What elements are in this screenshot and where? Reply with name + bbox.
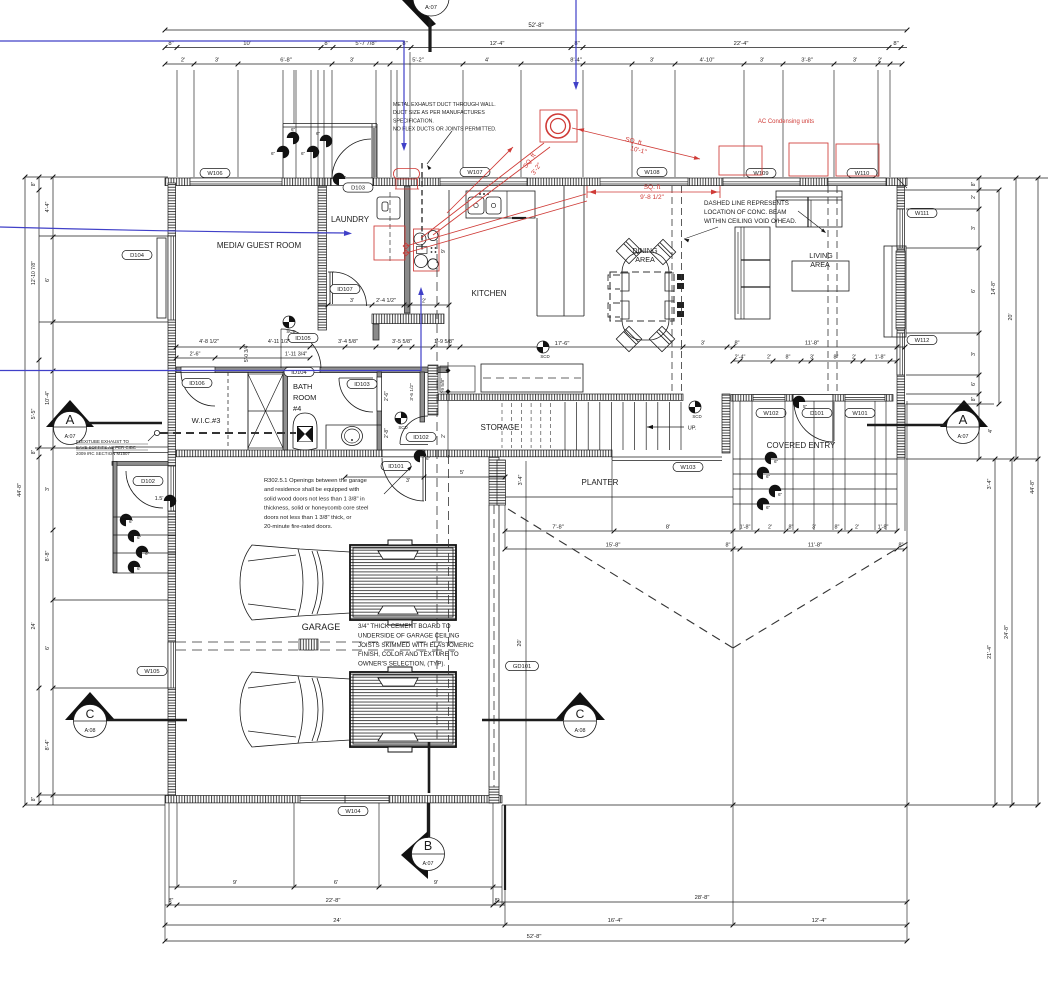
svg-text:DINING: DINING: [632, 246, 658, 255]
svg-text:UP.: UP.: [688, 426, 697, 432]
svg-text:9': 9': [434, 880, 438, 886]
svg-text:D104: D104: [130, 253, 145, 259]
svg-text:W107: W107: [467, 170, 482, 176]
svg-text:3': 3': [215, 58, 219, 64]
svg-text:12'-4": 12'-4": [490, 41, 505, 47]
svg-text:W102: W102: [763, 411, 778, 417]
svg-text:and residence shall be equippe: and residence shall be equipped with: [264, 487, 359, 493]
svg-text:6": 6": [766, 505, 771, 510]
svg-text:8": 8": [834, 355, 839, 361]
svg-text:2': 2': [878, 58, 882, 64]
svg-text:W108: W108: [644, 170, 659, 176]
svg-text:2': 2': [441, 434, 447, 438]
svg-text:22'-4": 22'-4": [734, 41, 749, 47]
svg-text:AC Condensing units: AC Condensing units: [758, 119, 814, 125]
svg-text:52'-8": 52'-8": [527, 934, 542, 940]
svg-text:6": 6": [129, 519, 134, 524]
svg-text:3': 3': [971, 226, 977, 230]
svg-text:20': 20': [517, 639, 523, 646]
svg-text:4': 4': [485, 58, 489, 64]
svg-text:11'-8": 11'-8": [808, 543, 822, 549]
svg-text:W106: W106: [207, 171, 222, 177]
svg-text:3'-5 5/8": 3'-5 5/8": [392, 339, 412, 345]
svg-text:C: C: [86, 707, 95, 721]
svg-text:3': 3': [701, 341, 705, 347]
svg-text:5'-2": 5'-2": [412, 58, 424, 64]
svg-text:PLANTER: PLANTER: [582, 478, 619, 487]
svg-text:2'-6": 2'-6": [384, 391, 390, 401]
svg-text:6': 6': [971, 289, 977, 293]
svg-text:METAL EXHAUST DUCT THROUGH WAL: METAL EXHAUST DUCT THROUGH WALL.: [393, 102, 496, 108]
svg-text:MEDIA/ GUEST ROOM: MEDIA/ GUEST ROOM: [217, 241, 302, 250]
svg-text:A:07: A:07: [422, 861, 433, 867]
svg-text:2': 2': [767, 355, 771, 361]
svg-text:6": 6": [778, 492, 783, 497]
svg-text:20': 20': [1008, 313, 1014, 320]
svg-text:DASHED LINE REPRESENTS: DASHED LINE REPRESENTS: [704, 200, 789, 207]
svg-text:D103: D103: [351, 186, 365, 192]
svg-text:OWNER'S SELECTION, (TYP).: OWNER'S SELECTION, (TYP).: [358, 661, 445, 668]
svg-text:9': 9': [233, 880, 237, 886]
svg-text:52'-8": 52'-8": [528, 23, 543, 29]
svg-text:2': 2': [768, 525, 772, 531]
svg-text:6": 6": [145, 551, 150, 556]
svg-text:GARAGE: GARAGE: [302, 622, 341, 632]
svg-text:3'-4": 3'-4": [987, 479, 993, 490]
svg-text:1'-9 5/8": 1'-9 5/8": [440, 378, 446, 396]
svg-text:LOCATION OF CONC. BEAM: LOCATION OF CONC. BEAM: [704, 209, 786, 216]
svg-text:6": 6": [774, 459, 779, 464]
svg-text:2'-6": 2'-6": [190, 352, 201, 358]
svg-text:A: A: [959, 412, 968, 427]
svg-text:2': 2': [855, 525, 859, 531]
svg-text:44'-8": 44'-8": [1030, 480, 1036, 494]
svg-text:KITCHEN: KITCHEN: [471, 289, 506, 298]
svg-text:3': 3': [406, 478, 410, 484]
svg-text:BATH: BATH: [293, 382, 312, 391]
svg-text:3'-8": 3'-8": [801, 58, 813, 64]
svg-text:D101: D101: [810, 411, 824, 417]
svg-text:3': 3': [350, 298, 354, 304]
svg-text:6": 6": [271, 151, 276, 156]
svg-text:W112: W112: [915, 338, 930, 344]
svg-text:8": 8": [789, 525, 794, 531]
svg-text:6": 6": [766, 474, 771, 479]
svg-text:2'-8": 2'-8": [384, 428, 390, 438]
svg-text:3': 3': [853, 58, 857, 64]
svg-text:LIVING: LIVING: [809, 251, 833, 260]
svg-text:1'-8": 1'-8": [875, 355, 886, 361]
svg-text:28'-8": 28'-8": [695, 895, 710, 901]
svg-text:4': 4': [988, 429, 994, 433]
svg-text:3': 3': [650, 58, 654, 64]
svg-text:B: B: [424, 839, 432, 853]
svg-text:8": 8": [168, 41, 173, 47]
svg-text:W109: W109: [753, 171, 768, 177]
svg-text:SPECIFICATION.: SPECIFICATION.: [393, 118, 434, 124]
svg-text:7'-8": 7'-8": [552, 525, 564, 531]
svg-text:24': 24': [333, 918, 341, 924]
svg-text:24'-8": 24'-8": [1004, 625, 1010, 639]
svg-text:8": 8": [169, 898, 174, 904]
svg-text:6": 6": [137, 566, 142, 571]
svg-text:ID102: ID102: [413, 435, 428, 441]
svg-text:16'-4": 16'-4": [608, 918, 623, 924]
svg-text:8": 8": [574, 41, 579, 47]
svg-text:6": 6": [301, 151, 306, 156]
svg-text:UNDERSIDE OF GARAGE CEILING: UNDERSIDE OF GARAGE CEILING: [358, 632, 460, 639]
svg-text:2': 2': [971, 195, 977, 199]
svg-text:3': 3': [45, 487, 51, 491]
svg-text:6": 6": [316, 131, 321, 136]
svg-text:3'-4 5/8": 3'-4 5/8": [338, 339, 358, 345]
svg-text:8'-4": 8'-4": [45, 740, 51, 751]
svg-text:6": 6": [137, 535, 142, 540]
svg-text:22'-8": 22'-8": [326, 898, 341, 904]
svg-text:8": 8": [402, 41, 407, 47]
svg-text:W.I.C.#3: W.I.C.#3: [192, 416, 221, 425]
svg-text:8": 8": [971, 397, 977, 402]
svg-text:5'-7 7/8": 5'-7 7/8": [355, 41, 376, 47]
svg-text:C: C: [576, 707, 585, 721]
svg-text:1'-11 3/4": 1'-11 3/4": [285, 352, 307, 358]
svg-text:WITHIN CEILING VOID O/HEAD.: WITHIN CEILING VOID O/HEAD.: [704, 218, 797, 225]
svg-text:2': 2': [181, 58, 185, 64]
svg-text:DUCT SIZE AS PER MANUFACTURES: DUCT SIZE AS PER MANUFACTURES: [393, 110, 485, 116]
svg-text:1'-8": 1'-8": [740, 525, 751, 531]
svg-text:COVERED ENTRY: COVERED ENTRY: [767, 441, 836, 450]
svg-text:8": 8": [971, 182, 977, 187]
svg-text:8": 8": [786, 355, 791, 361]
svg-text:LAUNDRY: LAUNDRY: [331, 215, 370, 224]
svg-text:3'-6 1/2": 3'-6 1/2": [409, 383, 415, 401]
svg-text:5'-0 3/4": 5'-0 3/4": [244, 344, 250, 363]
svg-text:3': 3': [971, 352, 977, 356]
svg-text:A: A: [66, 412, 75, 427]
svg-text:3': 3': [812, 525, 816, 531]
svg-text:5': 5': [460, 470, 464, 476]
svg-text:doors not less than 1 3/8" thi: doors not less than 1 3/8" thick, or: [264, 515, 352, 521]
svg-text:3'-4": 3'-4": [518, 475, 524, 486]
svg-text:ID103: ID103: [354, 382, 369, 388]
svg-text:2009 IRC SECTION M1507: 2009 IRC SECTION M1507: [76, 451, 130, 456]
svg-text:W103: W103: [680, 465, 695, 471]
svg-text:A:08: A:08: [84, 728, 95, 734]
svg-text:2'-4": 2'-4": [735, 355, 746, 361]
svg-text:2'-4 1/2": 2'-4 1/2": [376, 298, 396, 304]
svg-text:4'-4": 4'-4": [45, 202, 51, 213]
svg-text:1'-8": 1'-8": [878, 525, 889, 531]
svg-text:8": 8": [31, 182, 37, 187]
svg-text:AREA: AREA: [635, 255, 655, 264]
svg-text:12'-10 7/8": 12'-10 7/8": [31, 261, 37, 285]
svg-text:4'-8 1/2": 4'-8 1/2": [199, 339, 219, 345]
svg-text:3': 3': [760, 58, 764, 64]
svg-text:W104: W104: [345, 809, 361, 815]
svg-text:9'-8 1/2": 9'-8 1/2": [640, 194, 664, 201]
svg-text:NO FLEX DUCTS OR JOINTS PERMIT: NO FLEX DUCTS OR JOINTS PERMITTED.: [393, 127, 496, 133]
svg-text:ID107: ID107: [337, 287, 352, 293]
svg-text:10': 10': [243, 41, 251, 47]
svg-text:12'-4": 12'-4": [812, 918, 827, 924]
svg-text:44'-8": 44'-8": [17, 483, 23, 497]
svg-text:6": 6": [291, 127, 296, 132]
svg-text:8": 8": [726, 543, 731, 549]
svg-text:6': 6': [971, 382, 977, 386]
svg-text:3': 3': [350, 58, 354, 64]
svg-text:W105: W105: [144, 669, 159, 675]
svg-text:8": 8": [893, 41, 898, 47]
svg-text:8": 8": [835, 525, 840, 531]
svg-text:ID106: ID106: [189, 381, 204, 387]
svg-text:8": 8": [324, 41, 329, 47]
svg-text:EAVE SOFFITS AS PER CIBC: EAVE SOFFITS AS PER CIBC: [76, 445, 136, 450]
svg-text:8": 8": [495, 898, 500, 904]
svg-text:3/4" THICK CEMENT BOARD TO: 3/4" THICK CEMENT BOARD TO: [358, 623, 451, 630]
svg-text:24': 24': [31, 622, 37, 629]
svg-text:10'-4": 10'-4": [45, 391, 51, 405]
svg-text:#4: #4: [293, 404, 301, 413]
svg-text:5'-5": 5'-5": [31, 409, 37, 420]
svg-text:8": 8": [31, 450, 37, 455]
svg-text:W111: W111: [915, 211, 929, 217]
svg-text:3': 3': [810, 355, 814, 361]
svg-text:2': 2': [852, 355, 856, 361]
svg-text:JOISTS SKIMMED WITH ELASTOMERI: JOISTS SKIMMED WITH ELASTOMERIC: [358, 642, 474, 649]
svg-text:FLEXITUBE EXHAUST TO: FLEXITUBE EXHAUST TO: [76, 439, 130, 444]
svg-text:ID101: ID101: [388, 464, 403, 470]
svg-text:ROOM: ROOM: [293, 393, 316, 402]
svg-text:8': 8': [666, 525, 670, 531]
svg-text:A:07: A:07: [64, 434, 75, 440]
svg-text:8": 8": [31, 797, 37, 802]
svg-text:4'-11 1/2": 4'-11 1/2": [268, 339, 290, 345]
svg-text:6": 6": [342, 175, 347, 180]
svg-text:A:08: A:08: [574, 728, 585, 734]
svg-text:SQ. ft: SQ. ft: [644, 184, 661, 191]
svg-text:15'-8": 15'-8": [606, 543, 621, 549]
svg-text:ID105: ID105: [295, 336, 310, 342]
svg-text:thickness, solid or honeycomb: thickness, solid or honeycomb core steel: [264, 506, 368, 512]
svg-text:SCD: SCD: [540, 354, 549, 359]
svg-text:8'-8": 8'-8": [45, 551, 51, 562]
svg-text:9': 9': [441, 249, 447, 253]
svg-text:6': 6': [334, 880, 338, 886]
svg-text:1.5': 1.5': [155, 496, 164, 502]
svg-text:17'-6": 17'-6": [555, 341, 570, 347]
svg-text:6': 6': [45, 646, 51, 650]
svg-text:11'-8": 11'-8": [805, 341, 819, 347]
svg-text:STORAGE: STORAGE: [481, 423, 520, 432]
svg-text:A:07: A:07: [425, 5, 437, 11]
svg-text:A:07: A:07: [957, 434, 968, 440]
svg-text:2': 2': [422, 299, 426, 305]
svg-text:5": 5": [803, 404, 808, 409]
svg-text:4'-10": 4'-10": [700, 58, 715, 64]
svg-text:D102: D102: [141, 479, 155, 485]
svg-text:6'-8": 6'-8": [280, 58, 292, 64]
svg-text:14'-8": 14'-8": [991, 281, 997, 295]
svg-text:solid wood doors not less than: solid wood doors not less than 1 3/8" in: [264, 496, 365, 502]
svg-text:20-minute fire-rated doors.: 20-minute fire-rated doors.: [264, 524, 333, 530]
svg-text:21'-4": 21'-4": [987, 645, 993, 659]
svg-text:6': 6': [45, 278, 51, 282]
svg-text:W101: W101: [852, 411, 867, 417]
svg-text:SCD: SCD: [692, 414, 701, 419]
svg-text:8": 8": [734, 341, 739, 347]
svg-text:6": 6": [426, 456, 431, 461]
svg-text:GD101: GD101: [513, 664, 531, 670]
svg-text:R302.5.1 Openings between the: R302.5.1 Openings between the garage: [264, 478, 367, 484]
svg-text:FINISH, COLOR AND TEXTURE TO: FINISH, COLOR AND TEXTURE TO: [358, 651, 459, 658]
